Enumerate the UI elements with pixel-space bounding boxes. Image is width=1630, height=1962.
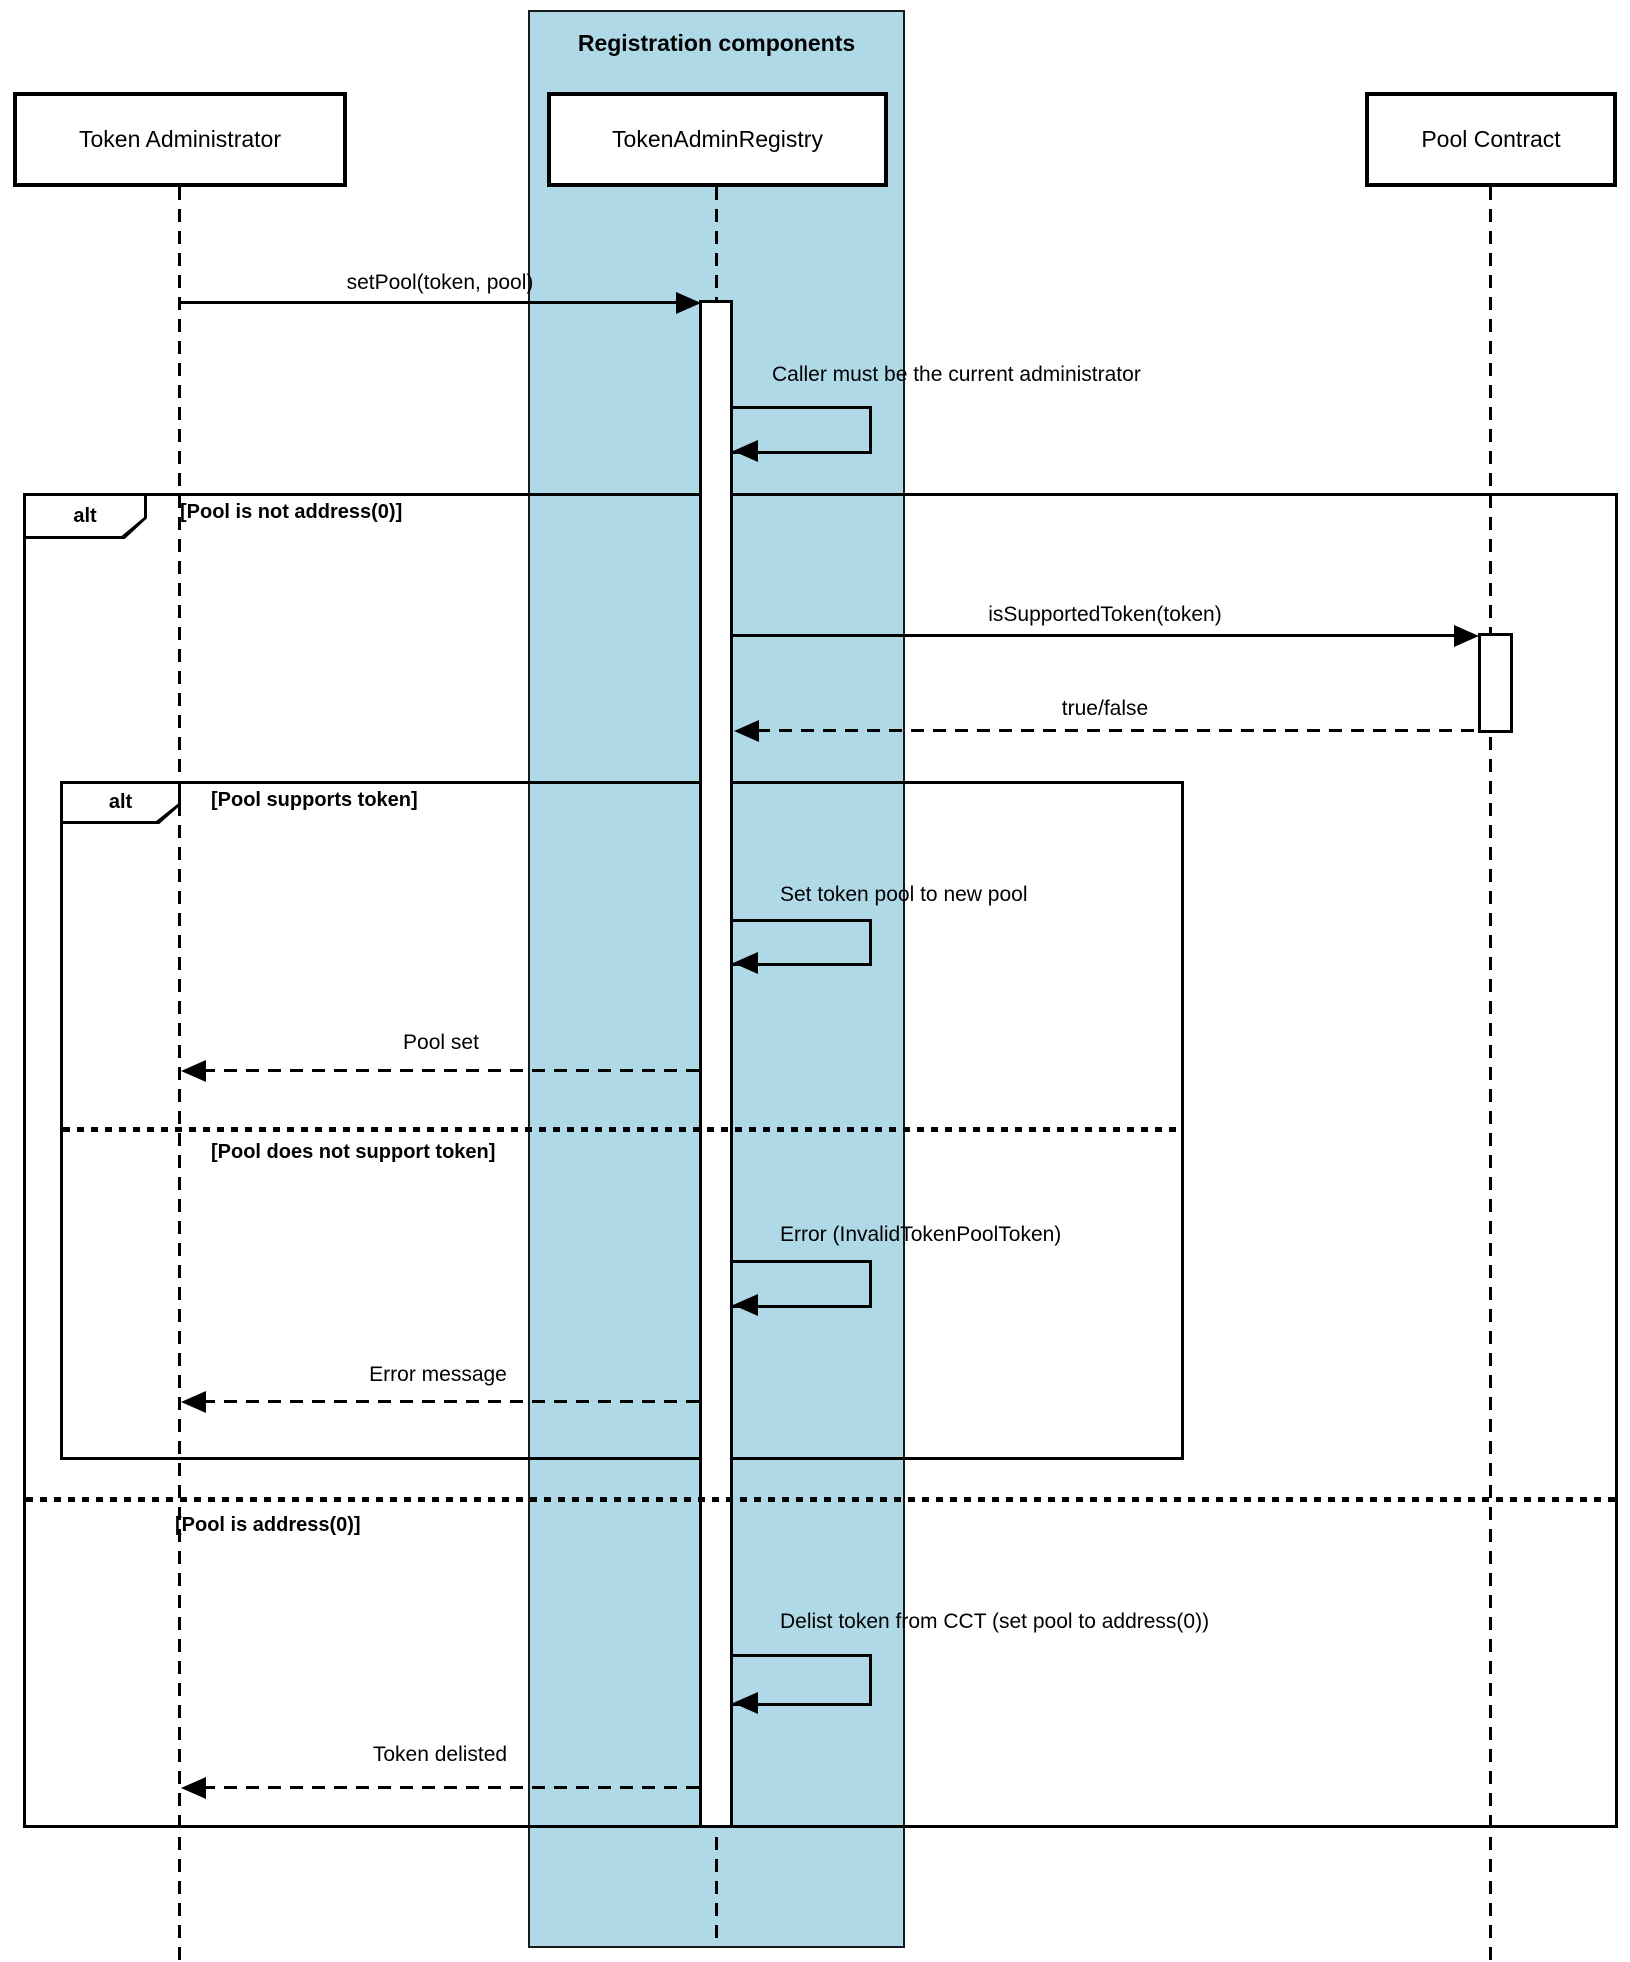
alt-frame-inner-operator-tab: alt	[60, 781, 181, 824]
return-line-pool-set	[202, 1069, 699, 1072]
activation-token-admin-registry	[699, 300, 733, 1828]
sequence-diagram: Registration components alt [Pool is not…	[0, 0, 1630, 1962]
message-label-error-invalid: Error (InvalidTokenPoolToken)	[780, 1223, 1061, 1247]
message-line-is-supported	[733, 634, 1458, 637]
arrowhead-is-supported	[1454, 625, 1479, 647]
message-line-set-pool	[180, 301, 680, 304]
participant-pool-contract: Pool Contract	[1365, 92, 1617, 187]
arrowhead-set-token-pool	[733, 952, 758, 974]
alt-operator-label: alt	[26, 496, 144, 536]
return-line-token-delisted	[202, 1786, 699, 1789]
message-label-delist: Delist token from CCT (set pool to addre…	[780, 1610, 1209, 1634]
participant-token-administrator: Token Administrator	[13, 92, 347, 187]
return-line-error-message	[202, 1400, 699, 1403]
arrowhead-error-message	[181, 1391, 206, 1413]
alt-outer-divider	[26, 1497, 1615, 1502]
message-label-caller-check: Caller must be the current administrator	[772, 363, 1141, 387]
activation-pool-contract	[1478, 633, 1513, 733]
message-label-set-pool: setPool(token, pool)	[240, 271, 640, 295]
message-label-true-false: true/false	[905, 697, 1305, 721]
message-label-error-message: Error message	[238, 1363, 638, 1387]
arrowhead-true-false	[734, 720, 759, 742]
message-label-token-delisted: Token delisted	[240, 1743, 640, 1767]
guard-pool-not-address0: [Pool is not address(0)]	[180, 501, 402, 524]
alt-frame-outer-operator-tab: alt	[23, 493, 147, 539]
arrowhead-set-pool	[676, 292, 701, 314]
participant-token-admin-registry: TokenAdminRegistry	[547, 92, 888, 187]
alt-operator-label: alt	[63, 784, 178, 821]
arrowhead-token-delisted	[181, 1777, 206, 1799]
guard-pool-supports-token: [Pool supports token]	[211, 789, 418, 812]
participant-label: TokenAdminRegistry	[612, 126, 823, 153]
registration-components-title: Registration components	[528, 30, 905, 57]
guard-pool-does-not-support-token: [Pool does not support token]	[211, 1141, 495, 1164]
guard-pool-is-address0: [Pool is address(0)]	[175, 1514, 361, 1537]
message-label-is-supported: isSupportedToken(token)	[905, 603, 1305, 627]
arrowhead-caller-check	[733, 440, 758, 462]
message-label-set-token-pool: Set token pool to new pool	[780, 883, 1028, 907]
arrowhead-pool-set	[181, 1060, 206, 1082]
arrowhead-delist	[733, 1692, 758, 1714]
arrowhead-error-invalid	[733, 1294, 758, 1316]
alt-inner-divider	[63, 1127, 1181, 1132]
participant-label: Token Administrator	[79, 126, 281, 153]
participant-label: Pool Contract	[1421, 126, 1560, 153]
message-label-pool-set: Pool set	[241, 1031, 641, 1055]
return-line-true-false	[757, 729, 1478, 732]
